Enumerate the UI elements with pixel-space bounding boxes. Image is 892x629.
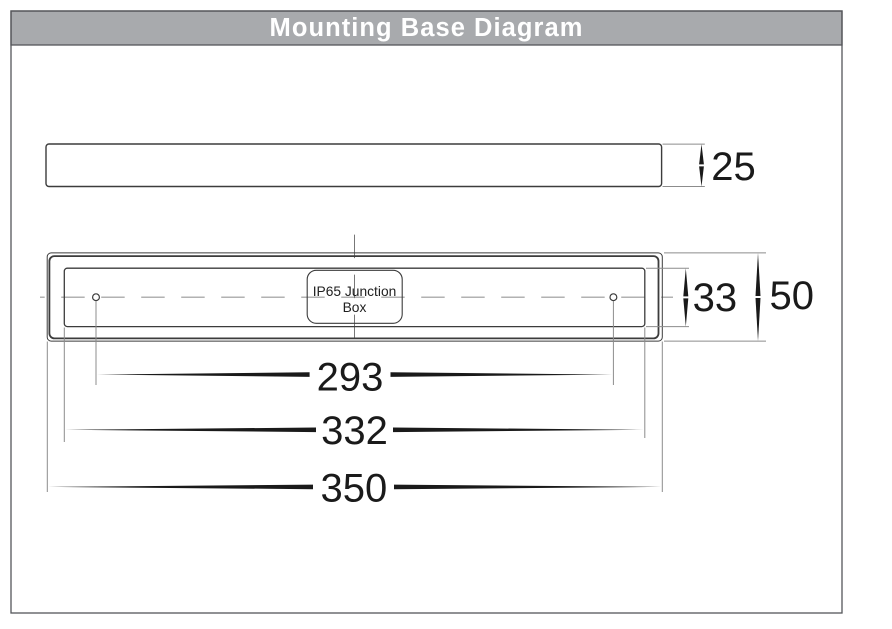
svg-text:293: 293	[317, 356, 384, 400]
svg-text:25: 25	[711, 145, 756, 189]
svg-text:350: 350	[321, 466, 388, 510]
svg-text:33: 33	[693, 276, 738, 320]
svg-text:Mounting Base Diagram: Mounting Base Diagram	[270, 14, 584, 42]
svg-text:50: 50	[770, 274, 815, 318]
svg-text:Box: Box	[343, 300, 367, 315]
svg-text:IP65 Junction: IP65 Junction	[313, 284, 397, 299]
svg-text:332: 332	[321, 409, 388, 453]
